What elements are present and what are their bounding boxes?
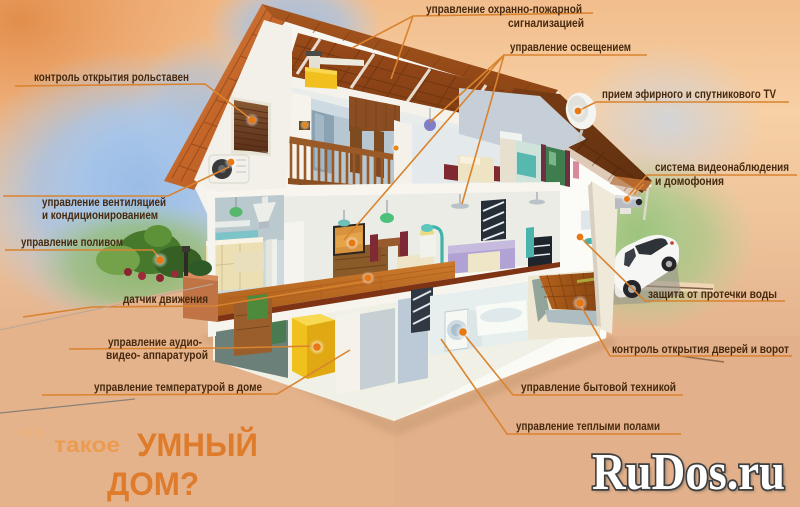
svg-text:управление теплыми полами: управление теплыми полами (516, 421, 660, 433)
svg-text:УМНЫЙ: УМНЫЙ (137, 427, 258, 463)
svg-text:управление температурой в доме: управление температурой в доме (94, 382, 262, 394)
svg-text:управление освещением: управление освещением (510, 42, 631, 54)
svg-text:контроль открытия рольставен: контроль открытия рольставен (34, 72, 189, 84)
svg-text:и кондиционированием: и кондиционированием (42, 210, 158, 222)
svg-text:такое: такое (54, 434, 120, 457)
svg-text:управление охранно-пожарной: управление охранно-пожарной (426, 4, 582, 16)
svg-text:и домофония: и домофония (655, 176, 724, 188)
svg-text:RuDos.ru: RuDos.ru (592, 444, 785, 501)
svg-text:датчик движения: датчик движения (123, 294, 208, 306)
svg-text:контроль открытия дверей и вор: контроль открытия дверей и ворот (612, 344, 789, 356)
svg-text:система видеонаблюдения: система видеонаблюдения (655, 162, 789, 174)
svg-text:управление вентиляцией: управление вентиляцией (42, 197, 166, 209)
svg-text:сигнализацией: сигнализацией (508, 18, 584, 30)
svg-text:управление поливом: управление поливом (21, 237, 123, 249)
svg-text:видео- аппаратурой: видео- аппаратурой (106, 350, 208, 362)
svg-text:прием эфирного и спутникового: прием эфирного и спутникового TV (602, 89, 776, 101)
svg-text:что: что (18, 424, 43, 441)
svg-text:управление бытовой техникой: управление бытовой техникой (521, 382, 676, 394)
svg-text:управление аудио-: управление аудио- (108, 337, 202, 349)
svg-text:ДОМ?: ДОМ? (107, 466, 199, 502)
svg-text:защита от протечки воды: защита от протечки воды (648, 289, 777, 301)
